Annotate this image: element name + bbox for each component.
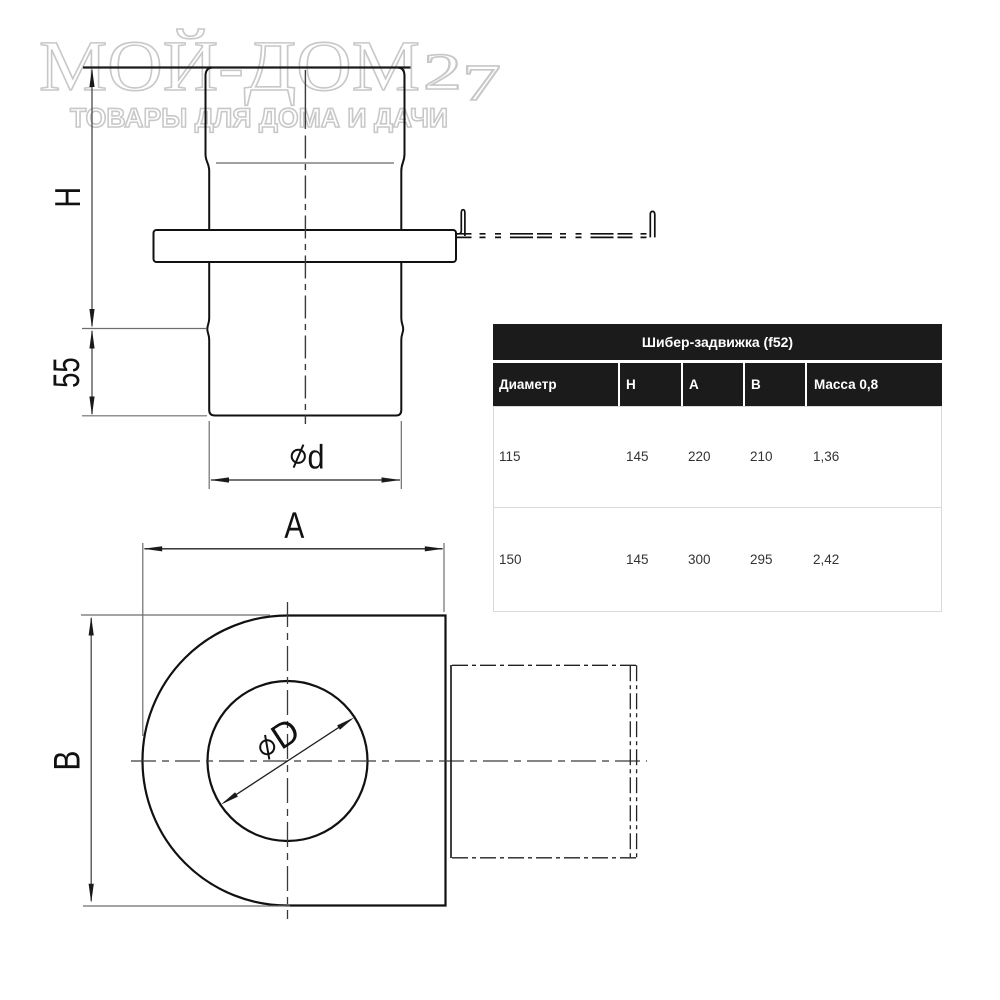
- svg-text:27: 27: [423, 44, 501, 112]
- svg-text:ТОВАРЫ ДЛЯ ДОМА И ДАЧИ: ТОВАРЫ ДЛЯ ДОМА И ДАЧИ: [70, 103, 448, 133]
- svg-text:МОЙ-ДОМ: МОЙ-ДОМ: [39, 26, 420, 106]
